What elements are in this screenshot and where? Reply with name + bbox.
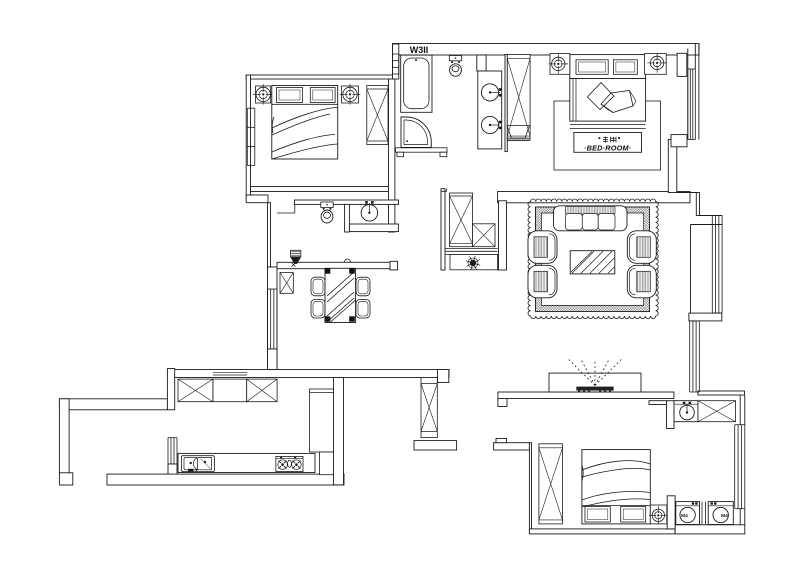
- svg-text:W3II: W3II: [410, 45, 429, 55]
- svg-text:·BED·ROOM·: ·BED·ROOM·: [584, 144, 631, 153]
- svg-text:M4: M4: [721, 513, 728, 519]
- svg-text:M4: M4: [681, 513, 688, 519]
